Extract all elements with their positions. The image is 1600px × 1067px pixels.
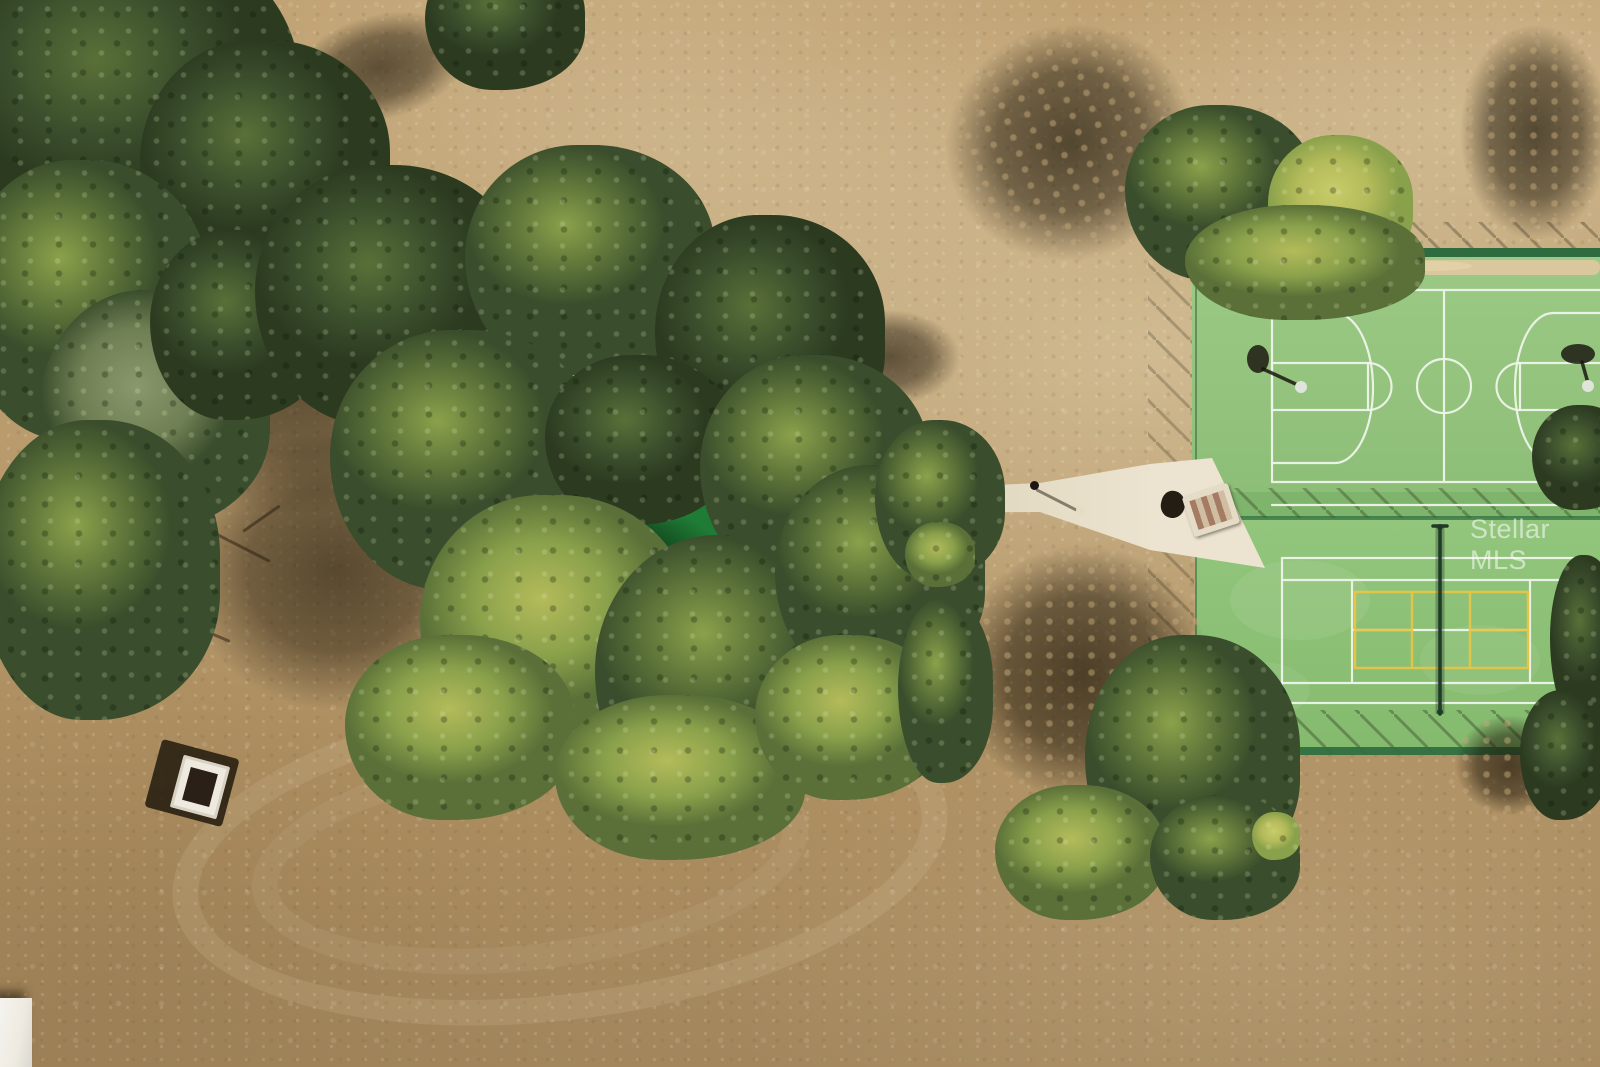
shrub xyxy=(1252,812,1300,860)
shrub xyxy=(905,522,975,587)
tree-canopy xyxy=(0,420,220,720)
corner-structure xyxy=(0,998,32,1067)
overhanging-canopy xyxy=(1185,205,1425,320)
tree-canopy xyxy=(995,785,1165,920)
tree-canopy xyxy=(345,635,575,820)
tree-canopy xyxy=(898,598,993,783)
pole-base xyxy=(1076,506,1084,514)
tree-canopy xyxy=(1520,690,1600,820)
aerial-park-photo: Stellar MLS xyxy=(0,0,1600,1067)
watermark: Stellar MLS xyxy=(1470,514,1600,576)
offscreen-tree-shadow xyxy=(1460,25,1600,240)
